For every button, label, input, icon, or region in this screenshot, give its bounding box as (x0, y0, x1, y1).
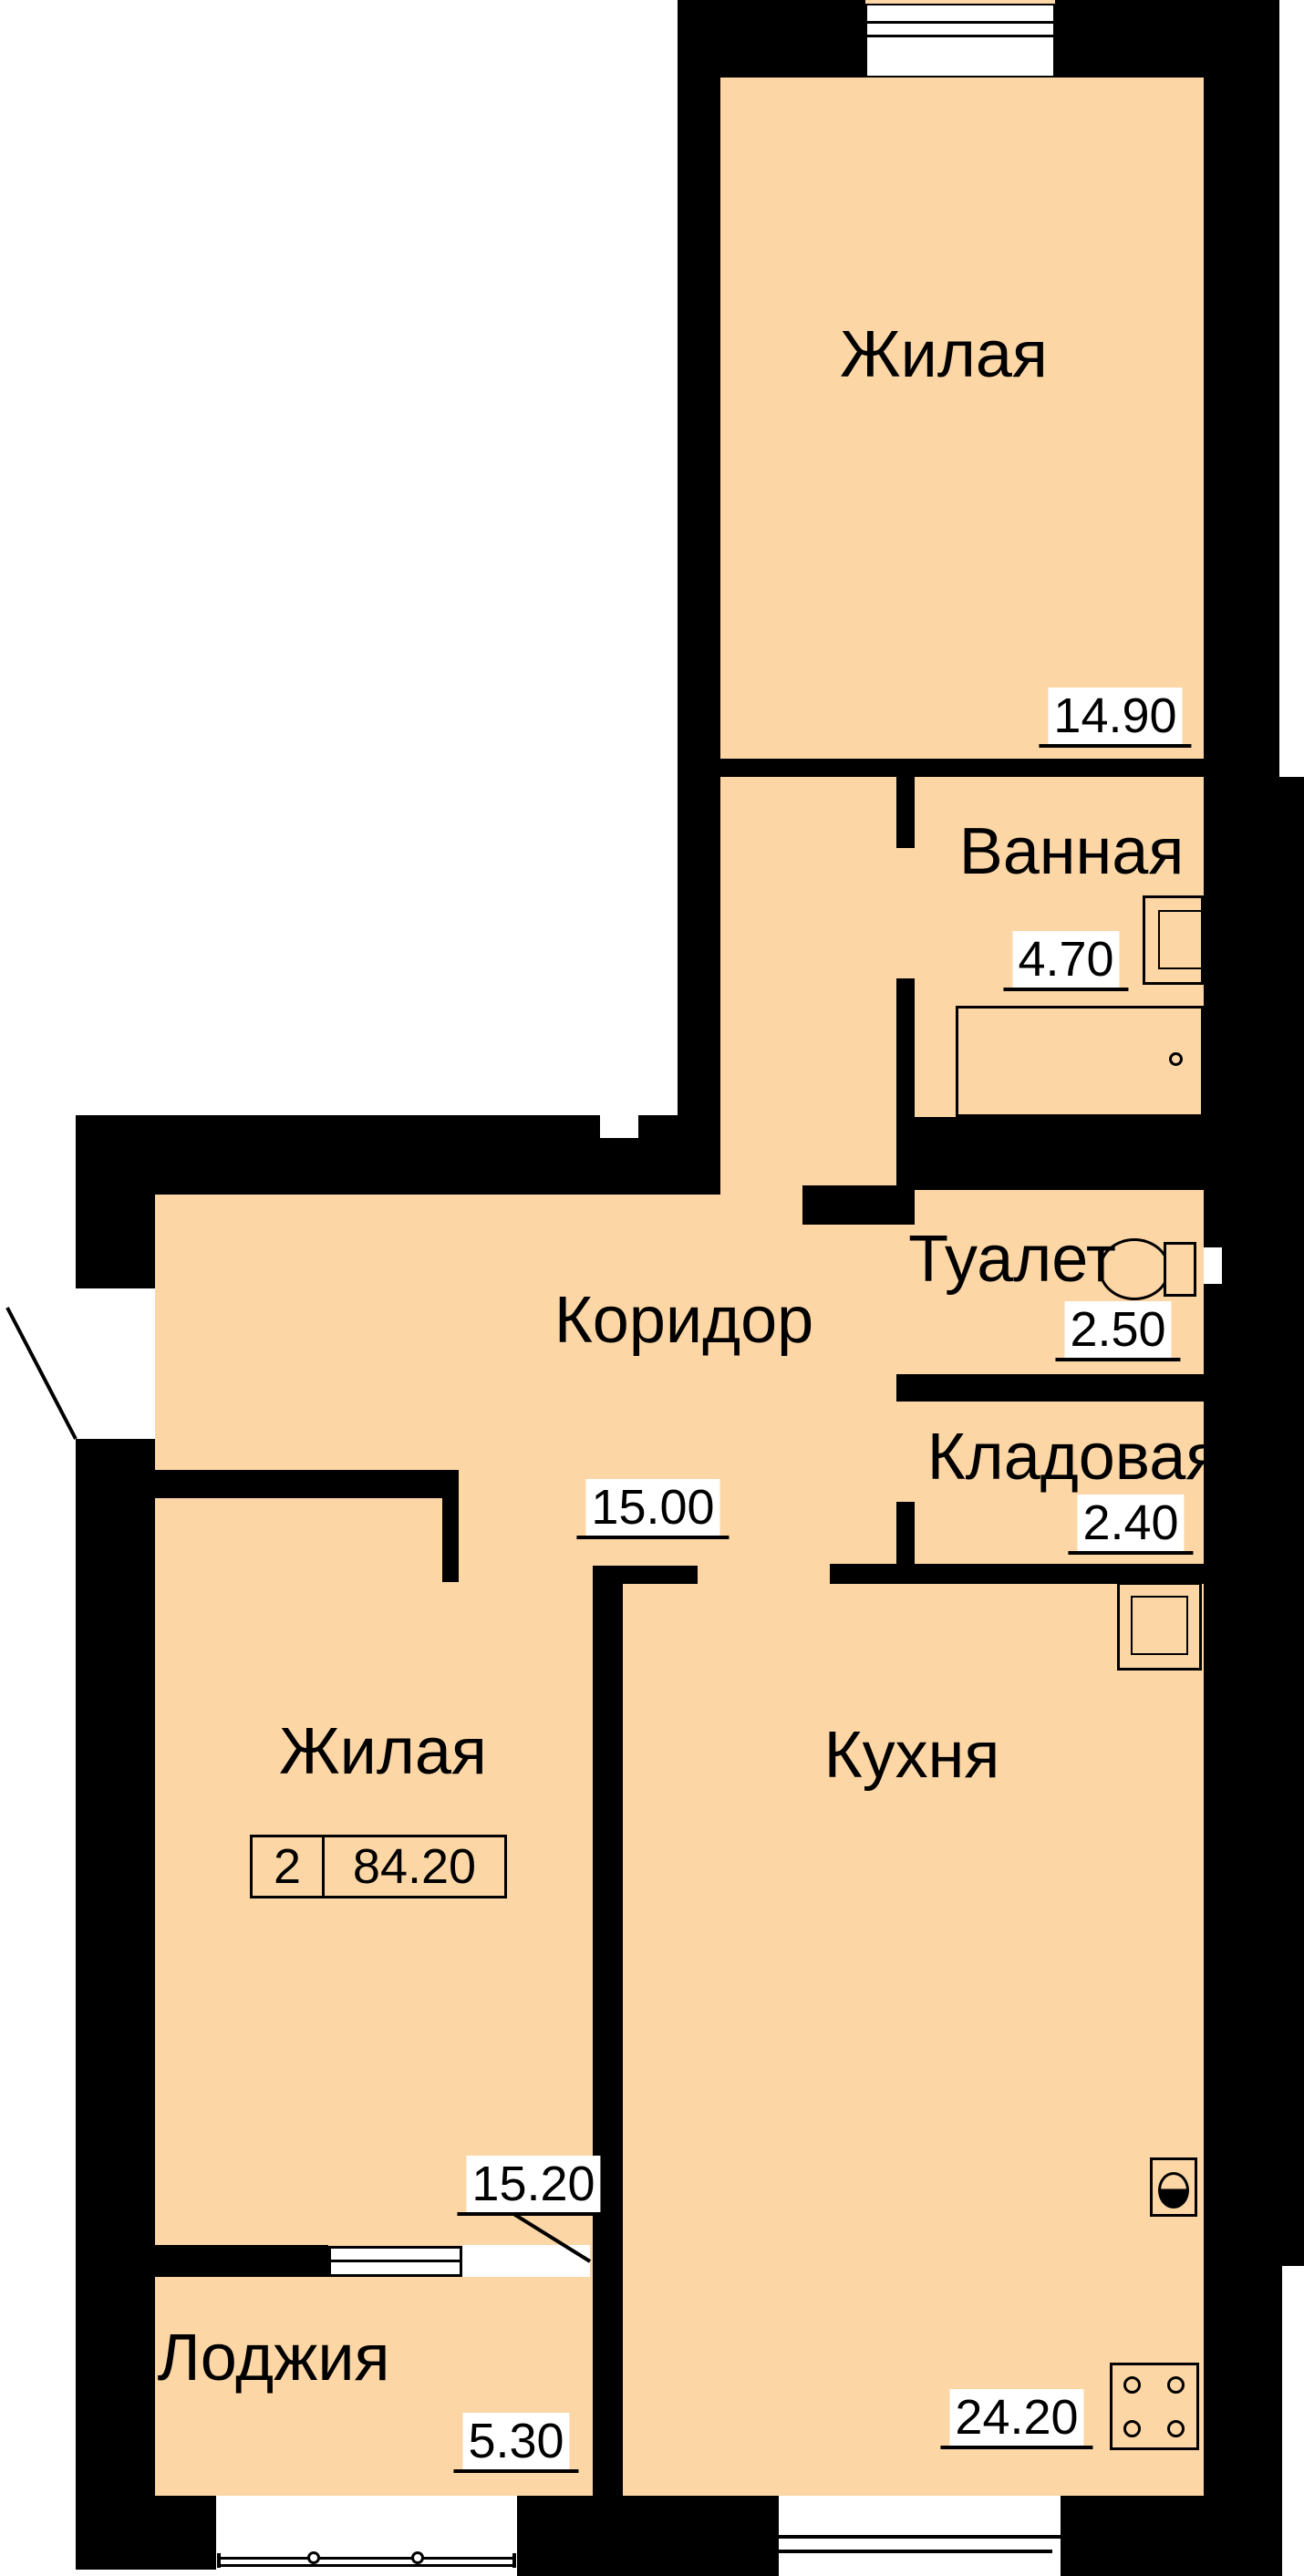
wall-bottom-middle (517, 2496, 779, 2576)
window-loggia-outer-tick2 (512, 2553, 516, 2568)
kitchen-sink-basin (1158, 2172, 1189, 2209)
window-top-room-line2 (867, 35, 1053, 37)
wall-bottom-right (1061, 2496, 1304, 2576)
room-label-living-left: Жилая (279, 1718, 487, 1787)
balcony-door-opening (462, 2245, 590, 2277)
window-top-room (865, 4, 1055, 78)
wall-bottom-left (76, 2496, 216, 2570)
room-label-living-top: Жилая (840, 321, 1048, 390)
stove-burner-3 (1123, 2420, 1141, 2437)
stove-icon (1110, 2363, 1199, 2450)
window-loggia-outer-joint1 (307, 2551, 320, 2564)
facade-gap-bottom-right (1282, 2266, 1304, 2576)
wall-living-right (593, 1566, 623, 2496)
wall-notch (600, 1115, 638, 1138)
window-loggia-outer-tick1 (217, 2553, 221, 2568)
facade-gap-top-right (1279, 0, 1304, 777)
vent-shaft-inner (1131, 1596, 1188, 1655)
bath-sink-basin (1158, 910, 1204, 969)
area-storage: 2.40 (1068, 1498, 1193, 1555)
window-loggia-inner-line (331, 2260, 460, 2262)
window-loggia-outer-line2 (219, 2564, 514, 2567)
wall-toilet-bottom (896, 1374, 1304, 1402)
wall-bathroom-top (679, 759, 1204, 777)
area-bathroom: 4.70 (1003, 935, 1128, 991)
wall-kitchen-top (830, 1564, 1204, 1584)
window-kitchen-line1 (779, 2535, 1061, 2539)
wall-left-of-top-room (678, 78, 720, 1115)
area-corridor: 15.00 (576, 1483, 729, 1539)
room-label-corridor: Коридор (554, 1287, 813, 1356)
window-loggia-outer-joint2 (411, 2551, 424, 2564)
floor-plan: Жилая Ванная Туалет Кладовая Коридор Жил… (0, 0, 1304, 2576)
wall-living-door-jamb (442, 1470, 459, 1582)
window-kitchen-line2 (779, 2550, 1052, 2553)
room-label-loggia: Лоджия (157, 2324, 389, 2394)
bathtub-drain (1169, 1052, 1183, 1066)
stove-burner-1 (1123, 2376, 1141, 2394)
window-loggia-outer-line1 (219, 2557, 514, 2560)
wall-loggia-top (153, 2245, 328, 2277)
wall-left-lower (76, 1439, 155, 2570)
stove-burner-4 (1167, 2420, 1185, 2437)
window-top-room-line1 (867, 21, 1053, 24)
area-living-left: 15.20 (457, 2159, 609, 2216)
entrance-door-swing-icon (7, 1308, 76, 1439)
area-living-top: 14.90 (1039, 691, 1191, 748)
stove-burner-2 (1167, 2376, 1185, 2394)
wall-top (678, 0, 865, 78)
area-kitchen: 24.20 (940, 2393, 1092, 2449)
room-label-storage: Кладовая (927, 1423, 1222, 1493)
wall-bathroom-left-stub (896, 759, 915, 848)
room-label-kitchen: Кухня (824, 1722, 1000, 1791)
room-label-bathroom: Ванная (959, 818, 1185, 887)
total-area: 84.20 (325, 1837, 504, 1896)
room-count: 2 (253, 1837, 325, 1896)
wall-toilet-top-left (802, 1185, 915, 1225)
area-toilet: 2.50 (1055, 1305, 1180, 1361)
apartment-summary: 2 84.20 (250, 1835, 507, 1898)
toilet-tank (1164, 1242, 1196, 1297)
room-label-toilet: Туалет (908, 1226, 1116, 1295)
area-loggia: 5.30 (453, 2416, 578, 2473)
wall-corridor-bottom (155, 1470, 459, 1498)
wall-bathroom-left (896, 978, 915, 1117)
toilet-wall-niche (1204, 1247, 1222, 1284)
wall-bath-toilet-divider (896, 1117, 1304, 1190)
entrance-door-opening (76, 1288, 155, 1439)
wall-storage-left-stub (896, 1502, 915, 1568)
bathtub-icon (956, 1006, 1204, 1117)
